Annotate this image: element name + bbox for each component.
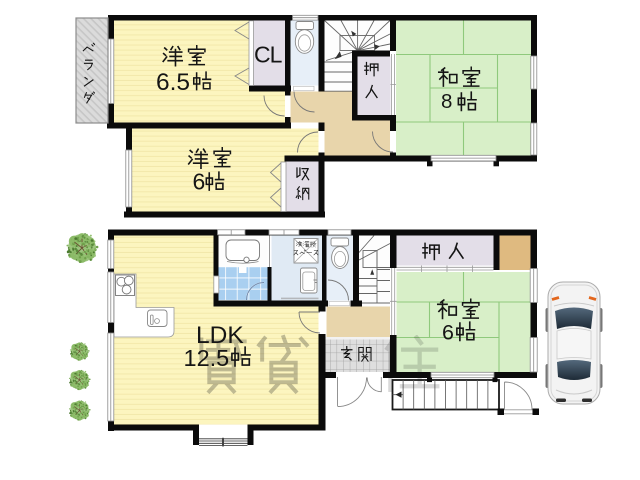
- svg-text:CL: CL: [254, 42, 283, 68]
- svg-text:6: 6: [193, 169, 206, 195]
- svg-text:6.5: 6.5: [156, 69, 190, 96]
- svg-text:8: 8: [441, 90, 452, 113]
- svg-text:6: 6: [442, 321, 454, 345]
